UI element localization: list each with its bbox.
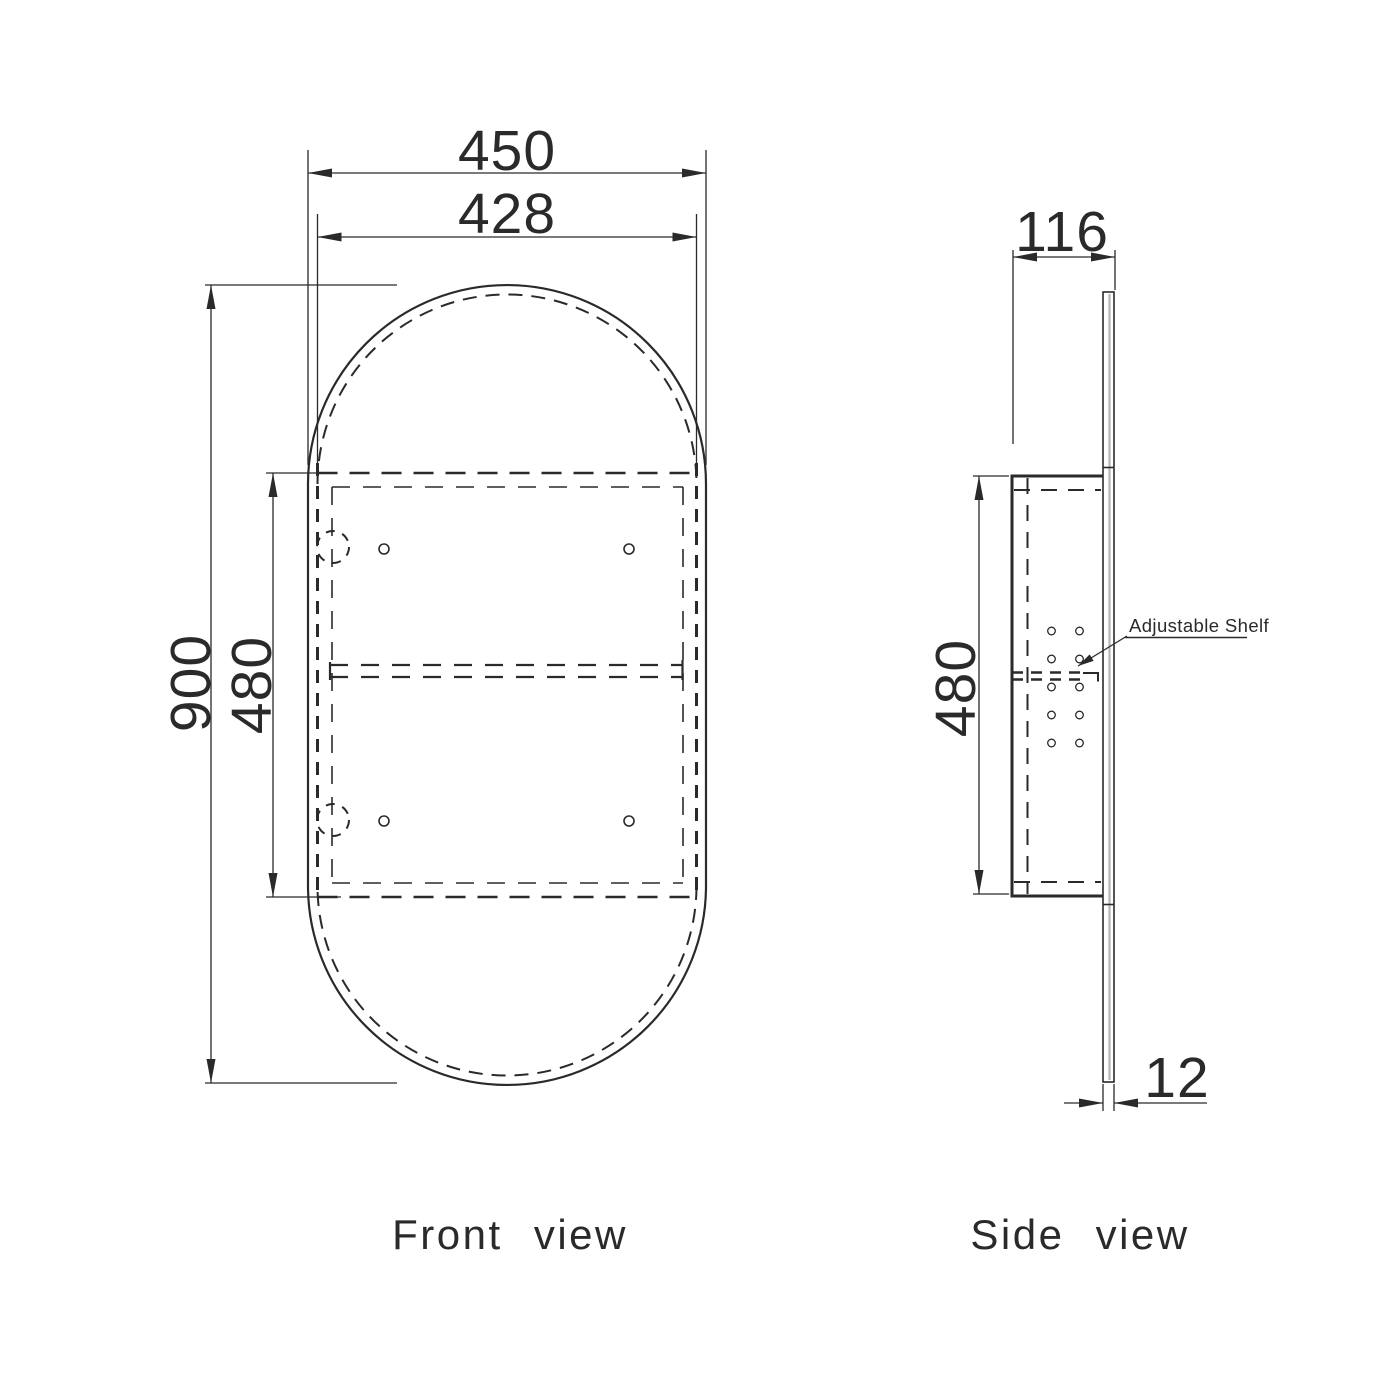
adjustable-shelf-label: Adjustable Shelf: [1129, 615, 1270, 636]
front-inner-oval-top-arc: [318, 295, 697, 485]
pin-hole: [379, 816, 389, 826]
side-view-drawing: 116 480 12 Adjustable Shelf: [924, 200, 1270, 1111]
front-inner-oval-bottom-arc: [318, 886, 697, 1076]
pin-hole: [1048, 627, 1056, 635]
pin-hole: [1076, 683, 1084, 691]
side-shelf-bracket: [1083, 673, 1098, 682]
dim-value-116: 116: [1015, 200, 1109, 264]
side-dim-depth: 116: [1013, 200, 1115, 444]
pin-hole: [1076, 739, 1084, 747]
front-dim-inner-width: 428: [318, 182, 697, 465]
front-view-title: Front view: [392, 1211, 628, 1258]
pin-hole: [1076, 627, 1084, 635]
pin-hole: [1048, 711, 1056, 719]
dim-value-428: 428: [458, 182, 556, 246]
front-hinge-top: [317, 531, 349, 563]
pin-hole: [1076, 711, 1084, 719]
pin-hole: [1076, 655, 1084, 663]
pin-hole: [1048, 683, 1056, 691]
front-hinge-bottom: [317, 804, 349, 836]
adjustable-shelf-callout: Adjustable Shelf: [1078, 615, 1270, 666]
side-dim-cabinet-height: 480: [924, 476, 1009, 894]
dim-value-12: 12: [1144, 1046, 1209, 1110]
pin-hole: [1048, 739, 1056, 747]
technical-drawing-canvas: 450 428 900 480: [0, 0, 1400, 1400]
technical-drawing-page: 450 428 900 480: [0, 0, 1400, 1400]
front-dim-overall-width: 450: [308, 119, 706, 465]
front-view-drawing: 450 428 900 480: [159, 119, 706, 1085]
side-shelf-pin-holes: [1048, 627, 1084, 747]
front-outer-door-outline: [308, 285, 706, 1085]
front-shelf-pin-holes: [379, 544, 634, 826]
dim-value-900: 900: [159, 634, 223, 732]
side-dim-mirror-thickness: 12: [1064, 1046, 1210, 1111]
dim-value-480-side: 480: [924, 639, 988, 737]
side-view-title: Side view: [970, 1211, 1189, 1258]
dim-value-480-front: 480: [220, 636, 284, 734]
side-cabinet-outline: [1012, 476, 1103, 896]
pin-hole: [624, 544, 634, 554]
pin-hole: [1048, 655, 1056, 663]
pin-hole: [379, 544, 389, 554]
dim-value-450: 450: [458, 119, 556, 183]
pin-hole: [624, 816, 634, 826]
